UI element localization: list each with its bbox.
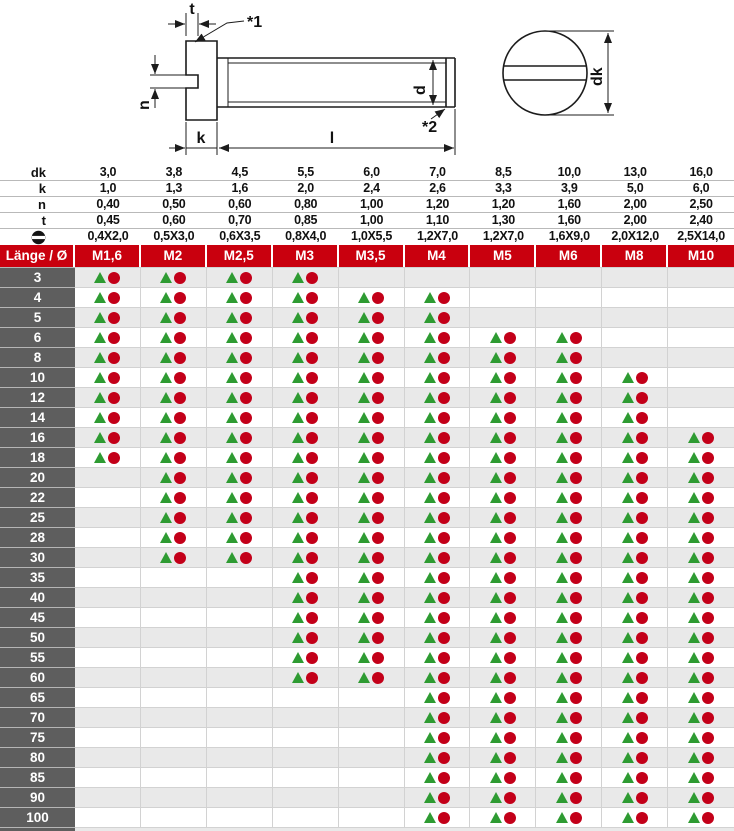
availability-cell xyxy=(339,767,405,787)
spec-value: 16,0 xyxy=(668,165,734,180)
circle-mark-icon xyxy=(108,332,120,344)
availability-cell xyxy=(602,807,668,827)
availability-cell xyxy=(405,667,471,687)
availability-cell xyxy=(141,447,207,467)
availability-cell xyxy=(536,287,602,307)
circle-mark-icon xyxy=(240,472,252,484)
spec-row: n0,400,500,600,801,001,201,201,602,002,5… xyxy=(0,197,734,213)
circle-mark-icon xyxy=(306,432,318,444)
triangle-mark-icon xyxy=(292,612,304,623)
availability-cell xyxy=(602,687,668,707)
availability-cell xyxy=(470,307,536,327)
availability-cell xyxy=(75,767,141,787)
circle-mark-icon xyxy=(372,572,384,584)
availability-cell xyxy=(470,627,536,647)
triangle-mark-icon xyxy=(556,772,568,783)
circle-mark-icon xyxy=(240,292,252,304)
availability-cell xyxy=(207,587,273,607)
availability-cell xyxy=(668,507,734,527)
triangle-mark-icon xyxy=(424,592,436,603)
triangle-mark-icon xyxy=(160,512,172,523)
length-label: 16 xyxy=(0,427,75,447)
availability-cell xyxy=(141,507,207,527)
circle-mark-icon xyxy=(306,472,318,484)
circle-mark-icon xyxy=(306,452,318,464)
table-row: 28 xyxy=(0,527,734,547)
circle-mark-icon xyxy=(636,392,648,404)
triangle-mark-icon xyxy=(94,432,106,443)
triangle-mark-icon xyxy=(490,392,502,403)
triangle-mark-icon xyxy=(688,712,700,723)
availability-cell xyxy=(141,727,207,747)
circle-mark-icon xyxy=(240,432,252,444)
availability-cell xyxy=(141,687,207,707)
triangle-mark-icon xyxy=(160,432,172,443)
spec-value: 3,8 xyxy=(141,165,207,180)
availability-cell xyxy=(339,367,405,387)
availability-cell xyxy=(602,587,668,607)
circle-mark-icon xyxy=(438,512,450,524)
availability-cell xyxy=(207,767,273,787)
availability-cell xyxy=(536,747,602,767)
triangle-mark-icon xyxy=(622,712,634,723)
triangle-mark-icon xyxy=(556,372,568,383)
dim-label-dk: dk xyxy=(589,67,606,86)
triangle-mark-icon xyxy=(292,272,304,283)
circle-mark-icon xyxy=(438,752,450,764)
spec-value: 2,00 xyxy=(602,197,668,212)
circle-mark-icon xyxy=(108,312,120,324)
circle-mark-icon xyxy=(570,792,582,804)
dim-label-n: n xyxy=(136,100,153,110)
availability-cell xyxy=(668,327,734,347)
circle-mark-icon xyxy=(702,572,714,584)
availability-cell xyxy=(602,507,668,527)
availability-cell xyxy=(405,707,471,727)
triangle-mark-icon xyxy=(490,792,502,803)
availability-cell xyxy=(339,287,405,307)
table-row: 75 xyxy=(0,727,734,747)
availability-cell xyxy=(405,807,471,827)
triangle-mark-icon xyxy=(292,392,304,403)
availability-cell xyxy=(536,767,602,787)
circle-mark-icon xyxy=(372,672,384,684)
triangle-mark-icon xyxy=(490,552,502,563)
triangle-mark-icon xyxy=(424,392,436,403)
circle-mark-icon xyxy=(438,712,450,724)
spec-value: 2,40 xyxy=(668,213,734,228)
availability-cell xyxy=(668,487,734,507)
length-label: 4 xyxy=(0,287,75,307)
triangle-mark-icon xyxy=(292,552,304,563)
availability-cell xyxy=(470,707,536,727)
availability-cell xyxy=(536,267,602,287)
circle-mark-icon xyxy=(636,492,648,504)
availability-cell xyxy=(405,347,471,367)
spec-value: 1,60 xyxy=(536,197,602,212)
circle-mark-icon xyxy=(240,532,252,544)
triangle-mark-icon xyxy=(424,752,436,763)
triangle-mark-icon xyxy=(292,472,304,483)
triangle-mark-icon xyxy=(490,612,502,623)
circle-mark-icon xyxy=(504,652,516,664)
note-label-2: *2 xyxy=(422,119,437,136)
circle-mark-icon xyxy=(504,632,516,644)
circle-mark-icon xyxy=(702,712,714,724)
triangle-mark-icon xyxy=(556,552,568,563)
circle-mark-icon xyxy=(636,512,648,524)
availability-cell xyxy=(75,627,141,647)
availability-cell xyxy=(536,407,602,427)
triangle-mark-icon xyxy=(490,732,502,743)
dimension-labels: t *1 n k l d *2 dk xyxy=(136,1,606,147)
availability-cell xyxy=(207,327,273,347)
spec-value: 5,5 xyxy=(273,165,339,180)
triangle-mark-icon xyxy=(292,672,304,683)
availability-cell xyxy=(668,727,734,747)
circle-mark-icon xyxy=(372,312,384,324)
circle-mark-icon xyxy=(438,432,450,444)
availability-cell xyxy=(536,307,602,327)
circle-mark-icon xyxy=(702,672,714,684)
availability-cell xyxy=(602,767,668,787)
triangle-mark-icon xyxy=(160,272,172,283)
availability-cell xyxy=(273,807,339,827)
circle-mark-icon xyxy=(570,752,582,764)
availability-cell xyxy=(405,467,471,487)
circle-mark-icon xyxy=(702,592,714,604)
availability-cell xyxy=(339,787,405,807)
availability-cell xyxy=(273,447,339,467)
circle-mark-icon xyxy=(636,752,648,764)
availability-cell xyxy=(141,547,207,567)
circle-mark-icon xyxy=(636,672,648,684)
triangle-mark-icon xyxy=(292,652,304,663)
circle-mark-icon xyxy=(306,532,318,544)
triangle-mark-icon xyxy=(622,792,634,803)
table-row: 70 xyxy=(0,707,734,727)
triangle-mark-icon xyxy=(160,312,172,323)
availability-cell xyxy=(75,567,141,587)
triangle-mark-icon xyxy=(622,452,634,463)
availability-cell xyxy=(141,347,207,367)
availability-cell xyxy=(536,627,602,647)
availability-cell xyxy=(75,667,141,687)
circle-mark-icon xyxy=(702,552,714,564)
length-label: 6 xyxy=(0,327,75,347)
table-row: 20 xyxy=(0,467,734,487)
triangle-mark-icon xyxy=(556,712,568,723)
triangle-mark-icon xyxy=(424,812,436,823)
availability-cell xyxy=(668,747,734,767)
triangle-mark-icon xyxy=(622,472,634,483)
availability-cell xyxy=(273,387,339,407)
availability-cell xyxy=(602,607,668,627)
availability-cell xyxy=(75,387,141,407)
size-column-header: M5 xyxy=(470,245,536,267)
triangle-mark-icon xyxy=(688,812,700,823)
availability-cell xyxy=(273,787,339,807)
triangle-mark-icon xyxy=(292,372,304,383)
availability-cell xyxy=(141,647,207,667)
size-column-header: M2,5 xyxy=(207,245,273,267)
availability-cell xyxy=(470,327,536,347)
table-row: 90 xyxy=(0,787,734,807)
availability-cell xyxy=(141,427,207,447)
spec-value: 1,2X7,0 xyxy=(405,229,471,246)
length-label: 50 xyxy=(0,627,75,647)
circle-mark-icon xyxy=(702,692,714,704)
triangle-mark-icon xyxy=(424,512,436,523)
availability-cell xyxy=(536,367,602,387)
triangle-mark-icon xyxy=(622,552,634,563)
technical-drawing: t *1 n k l d *2 dk xyxy=(0,0,734,165)
triangle-mark-icon xyxy=(556,452,568,463)
circle-mark-icon xyxy=(702,452,714,464)
circle-mark-icon xyxy=(504,752,516,764)
circle-mark-icon xyxy=(636,772,648,784)
availability-cell xyxy=(602,547,668,567)
triangle-mark-icon xyxy=(622,572,634,583)
circle-mark-icon xyxy=(372,532,384,544)
triangle-mark-icon xyxy=(94,392,106,403)
spec-value: 6,0 xyxy=(668,181,734,196)
circle-mark-icon xyxy=(570,772,582,784)
availability-cell xyxy=(273,407,339,427)
availability-cell xyxy=(339,587,405,607)
availability-cell xyxy=(668,587,734,607)
triangle-mark-icon xyxy=(688,732,700,743)
table-row: 16 xyxy=(0,427,734,447)
availability-cell xyxy=(207,567,273,587)
availability-cell xyxy=(405,527,471,547)
circle-mark-icon xyxy=(306,312,318,324)
circle-mark-icon xyxy=(174,272,186,284)
triangle-mark-icon xyxy=(688,512,700,523)
circle-mark-icon xyxy=(504,432,516,444)
triangle-mark-icon xyxy=(424,312,436,323)
circle-mark-icon xyxy=(438,612,450,624)
circle-mark-icon xyxy=(504,732,516,744)
circle-mark-icon xyxy=(306,292,318,304)
circle-mark-icon xyxy=(636,472,648,484)
length-label: 65 xyxy=(0,687,75,707)
length-label: 20 xyxy=(0,467,75,487)
availability-cell xyxy=(602,387,668,407)
triangle-mark-icon xyxy=(688,432,700,443)
triangle-mark-icon xyxy=(622,632,634,643)
availability-cell xyxy=(141,287,207,307)
spec-value: 0,40 xyxy=(75,197,141,212)
circle-mark-icon xyxy=(438,412,450,424)
availability-cell xyxy=(75,467,141,487)
availability-cell xyxy=(141,467,207,487)
triangle-mark-icon xyxy=(424,352,436,363)
availability-cell xyxy=(207,807,273,827)
triangle-mark-icon xyxy=(226,312,238,323)
availability-cell xyxy=(75,647,141,667)
availability-cell xyxy=(536,447,602,467)
availability-cell xyxy=(339,327,405,347)
availability-cell xyxy=(470,567,536,587)
length-label: 80 xyxy=(0,747,75,767)
circle-mark-icon xyxy=(438,332,450,344)
availability-cell xyxy=(536,327,602,347)
availability-cell xyxy=(602,727,668,747)
availability-cell xyxy=(207,267,273,287)
dim-label-l: l xyxy=(330,130,334,147)
availability-cell xyxy=(141,567,207,587)
table-row: 60 xyxy=(0,667,734,687)
spec-value: 6,0 xyxy=(339,165,405,180)
availability-cell xyxy=(536,687,602,707)
circle-mark-icon xyxy=(108,432,120,444)
circle-mark-icon xyxy=(636,712,648,724)
triangle-mark-icon xyxy=(490,432,502,443)
triangle-mark-icon xyxy=(490,572,502,583)
triangle-mark-icon xyxy=(490,772,502,783)
triangle-mark-icon xyxy=(556,592,568,603)
length-label: 35 xyxy=(0,567,75,587)
triangle-mark-icon xyxy=(688,772,700,783)
table-row: 12 xyxy=(0,387,734,407)
spec-value: 2,6 xyxy=(405,181,471,196)
availability-cell xyxy=(273,747,339,767)
triangle-mark-icon xyxy=(688,572,700,583)
triangle-mark-icon xyxy=(688,652,700,663)
availability-cell xyxy=(668,807,734,827)
availability-cell xyxy=(470,467,536,487)
availability-cell xyxy=(602,667,668,687)
availability-cell xyxy=(470,347,536,367)
availability-cell xyxy=(141,387,207,407)
circle-mark-icon xyxy=(504,392,516,404)
length-label: 3 xyxy=(0,267,75,287)
circle-mark-icon xyxy=(372,612,384,624)
circle-mark-icon xyxy=(306,272,318,284)
triangle-mark-icon xyxy=(556,732,568,743)
circle-mark-icon xyxy=(306,612,318,624)
spec-value: 1,30 xyxy=(470,213,536,228)
triangle-mark-icon xyxy=(622,532,634,543)
circle-mark-icon xyxy=(438,352,450,364)
circle-mark-icon xyxy=(636,572,648,584)
circle-mark-icon xyxy=(174,292,186,304)
circle-mark-icon xyxy=(570,632,582,644)
availability-cell xyxy=(273,627,339,647)
circle-mark-icon xyxy=(504,812,516,824)
dim-label-d: d xyxy=(412,85,429,95)
triangle-mark-icon xyxy=(424,632,436,643)
circle-mark-icon xyxy=(636,432,648,444)
circle-mark-icon xyxy=(306,412,318,424)
table-row: 6 xyxy=(0,327,734,347)
availability-cell xyxy=(470,427,536,447)
circle-mark-icon xyxy=(504,512,516,524)
length-label: 45 xyxy=(0,607,75,627)
availability-cell xyxy=(668,787,734,807)
circle-mark-icon xyxy=(504,372,516,384)
availability-cell xyxy=(668,627,734,647)
circle-mark-icon xyxy=(636,372,648,384)
triangle-mark-icon xyxy=(688,632,700,643)
availability-cell xyxy=(75,327,141,347)
circle-mark-icon xyxy=(372,472,384,484)
triangle-mark-icon xyxy=(226,512,238,523)
availability-cell xyxy=(75,587,141,607)
size-header-row: Länge / Ø M1,6M2M2,5M3M3,5M4M5M6M8M10 xyxy=(0,245,734,267)
circle-mark-icon xyxy=(174,432,186,444)
availability-cell xyxy=(602,627,668,647)
circle-mark-icon xyxy=(570,552,582,564)
triangle-mark-icon xyxy=(160,372,172,383)
triangle-mark-icon xyxy=(688,472,700,483)
circle-mark-icon xyxy=(306,592,318,604)
length-label: 12 xyxy=(0,387,75,407)
spec-row: 0,4X2,00,5X3,00,6X3,50,8X4,01,0X5,51,2X7… xyxy=(0,229,734,245)
availability-cell xyxy=(668,527,734,547)
availability-cell xyxy=(273,307,339,327)
triangle-mark-icon xyxy=(556,332,568,343)
triangle-mark-icon xyxy=(424,732,436,743)
availability-cell xyxy=(207,467,273,487)
availability-cell xyxy=(602,647,668,667)
triangle-mark-icon xyxy=(556,572,568,583)
triangle-mark-icon xyxy=(226,332,238,343)
availability-cell xyxy=(141,667,207,687)
spec-value: 1,6 xyxy=(207,181,273,196)
size-column-header: M3 xyxy=(273,245,339,267)
availability-cell xyxy=(75,487,141,507)
availability-cell xyxy=(75,367,141,387)
availability-cell xyxy=(339,707,405,727)
availability-cell xyxy=(470,507,536,527)
spec-value: 3,0 xyxy=(75,165,141,180)
triangle-mark-icon xyxy=(622,392,634,403)
availability-cell xyxy=(141,267,207,287)
availability-cell xyxy=(602,407,668,427)
triangle-mark-icon xyxy=(688,792,700,803)
availability-cell xyxy=(273,327,339,347)
catalog-page: t *1 n k l d *2 dk dk3,03,84,55,56,07,08… xyxy=(0,0,734,831)
circle-mark-icon xyxy=(372,432,384,444)
circle-mark-icon xyxy=(438,792,450,804)
circle-mark-icon xyxy=(570,372,582,384)
triangle-mark-icon xyxy=(556,692,568,703)
triangle-mark-icon xyxy=(622,752,634,763)
availability-cell xyxy=(668,767,734,787)
spec-value: 5,0 xyxy=(602,181,668,196)
availability-cell xyxy=(339,467,405,487)
table-row: 22 xyxy=(0,487,734,507)
availability-cell xyxy=(273,527,339,547)
circle-mark-icon xyxy=(570,812,582,824)
table-row: 45 xyxy=(0,607,734,627)
circle-mark-icon xyxy=(504,552,516,564)
circle-mark-icon xyxy=(174,452,186,464)
availability-cell xyxy=(405,607,471,627)
triangle-mark-icon xyxy=(358,432,370,443)
availability-cell xyxy=(207,687,273,707)
triangle-mark-icon xyxy=(556,652,568,663)
triangle-mark-icon xyxy=(358,352,370,363)
triangle-mark-icon xyxy=(622,772,634,783)
availability-cell xyxy=(141,487,207,507)
triangle-mark-icon xyxy=(688,492,700,503)
triangle-mark-icon xyxy=(688,612,700,623)
circle-mark-icon xyxy=(438,532,450,544)
circle-mark-icon xyxy=(702,532,714,544)
